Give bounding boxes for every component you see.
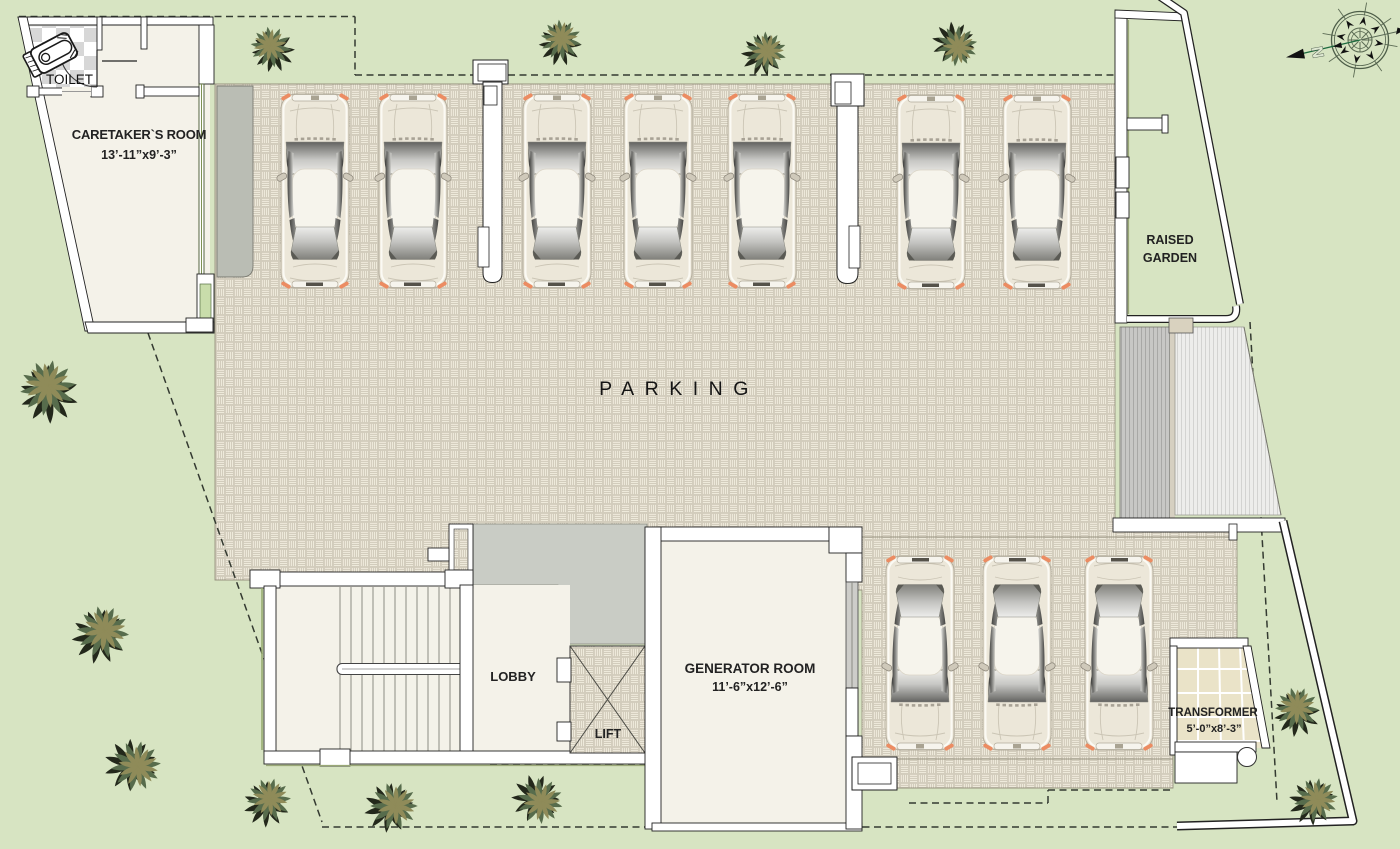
svg-text:13’-11”x9’-3”: 13’-11”x9’-3” — [101, 148, 177, 162]
svg-text:5’-0”x8’-3”: 5’-0”x8’-3” — [1186, 723, 1241, 735]
svg-text:LOBBY: LOBBY — [490, 669, 536, 684]
svg-text:GARDEN: GARDEN — [1143, 251, 1197, 265]
svg-text:CARETAKER`S ROOM: CARETAKER`S ROOM — [72, 127, 207, 142]
svg-text:PARKING: PARKING — [599, 378, 759, 400]
svg-text:11’-6”x12’-6”: 11’-6”x12’-6” — [712, 680, 788, 694]
svg-text:RAISED: RAISED — [1146, 233, 1193, 247]
svg-text:LIFT: LIFT — [595, 727, 622, 741]
svg-text:TOILET: TOILET — [46, 72, 93, 87]
svg-text:GENERATOR ROOM: GENERATOR ROOM — [685, 661, 816, 676]
svg-text:TRANSFORMER: TRANSFORMER — [1168, 707, 1258, 719]
